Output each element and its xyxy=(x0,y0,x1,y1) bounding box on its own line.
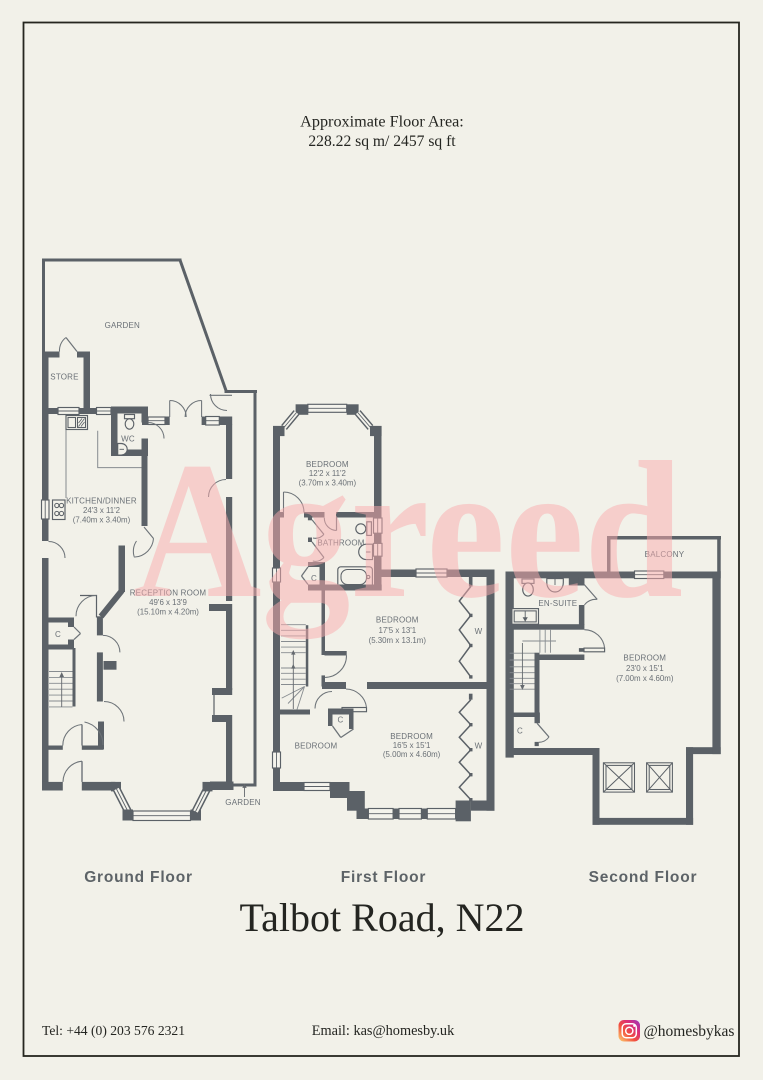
svg-text:Approximate Floor Area:: Approximate Floor Area: xyxy=(300,113,464,131)
svg-text:W: W xyxy=(475,742,483,751)
svg-text:KITCHEN/DINNER: KITCHEN/DINNER xyxy=(66,497,137,506)
svg-text:23'0 x 15'1: 23'0 x 15'1 xyxy=(626,664,664,673)
svg-text:Agreed: Agreed xyxy=(133,422,683,639)
svg-text:STORE: STORE xyxy=(50,373,78,382)
svg-text:C: C xyxy=(517,727,523,736)
svg-text:(5.00m x 4.60m): (5.00m x 4.60m) xyxy=(383,750,441,759)
svg-text:@homesbykas: @homesbykas xyxy=(644,1023,735,1040)
svg-text:First Floor: First Floor xyxy=(341,869,426,886)
svg-text:GARDEN: GARDEN xyxy=(225,798,260,807)
svg-text:Tel: +44 (0) 203 576 2321: Tel: +44 (0) 203 576 2321 xyxy=(42,1023,185,1039)
svg-text:(7.40m x 3.40m): (7.40m x 3.40m) xyxy=(73,516,131,525)
svg-text:BEDROOM: BEDROOM xyxy=(623,654,666,663)
svg-text:(7.00m x 4.60m): (7.00m x 4.60m) xyxy=(616,674,674,683)
svg-text:Ground Floor: Ground Floor xyxy=(84,869,193,886)
svg-text:BEDROOM: BEDROOM xyxy=(295,742,338,751)
svg-text:24'3 x 11'2: 24'3 x 11'2 xyxy=(83,506,120,515)
svg-text:GARDEN: GARDEN xyxy=(105,321,140,330)
svg-text:C: C xyxy=(55,630,61,639)
svg-text:BEDROOM: BEDROOM xyxy=(390,732,433,741)
svg-text:Second Floor: Second Floor xyxy=(589,869,698,886)
svg-text:C: C xyxy=(338,716,344,725)
svg-text:Talbot Road, N22: Talbot Road, N22 xyxy=(240,895,525,940)
svg-text:16'5 x 15'1: 16'5 x 15'1 xyxy=(393,741,431,750)
svg-text:Email: kas@homesby.uk: Email: kas@homesby.uk xyxy=(312,1023,455,1039)
svg-text:228.22 sq m/ 2457 sq ft: 228.22 sq m/ 2457 sq ft xyxy=(308,133,456,150)
